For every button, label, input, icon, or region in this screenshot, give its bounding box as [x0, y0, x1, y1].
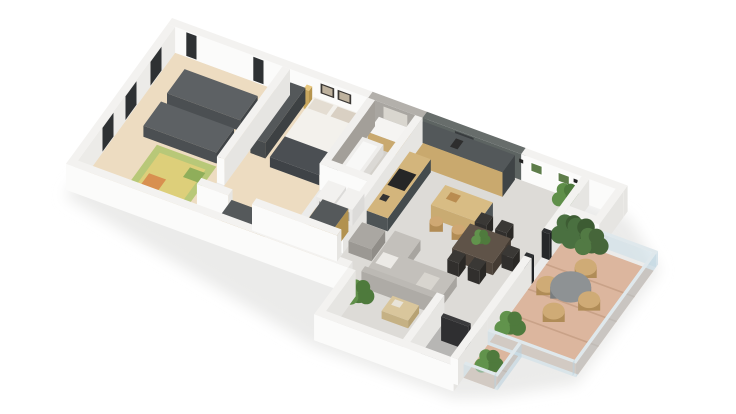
extension-right-wall-front — [451, 357, 459, 386]
balcony-rail-top-side — [656, 251, 658, 267]
balcony-bush-2-foliage — [487, 350, 500, 363]
interior-wall-kids-master-front — [217, 157, 225, 186]
balcony-rail-wrap-bottom-side — [494, 373, 496, 389]
window-slot-kids-b — [253, 57, 263, 85]
floorplan-3d-render — [0, 0, 736, 414]
bar-stool-2-top — [452, 224, 465, 234]
balcony-door-frame-b-side — [532, 255, 534, 284]
balcony-hedge-3-foliage — [589, 229, 604, 244]
floorplan-stage — [0, 0, 736, 414]
window-slot-kids-a — [186, 32, 196, 59]
balcony-bush-1-foliage — [507, 311, 521, 325]
dining-table-plant-foliage — [479, 230, 488, 239]
balcony-chair-south-top — [543, 303, 565, 320]
balcony-rail-bottom-side — [573, 360, 575, 376]
balcony-chair-east-top — [578, 291, 600, 308]
balcony-door-frame-a-front — [542, 231, 550, 260]
living-room-plant-foliage — [356, 280, 370, 294]
balcony-door-frame-a-side — [549, 231, 551, 260]
bar-stool-1-top — [430, 216, 443, 226]
